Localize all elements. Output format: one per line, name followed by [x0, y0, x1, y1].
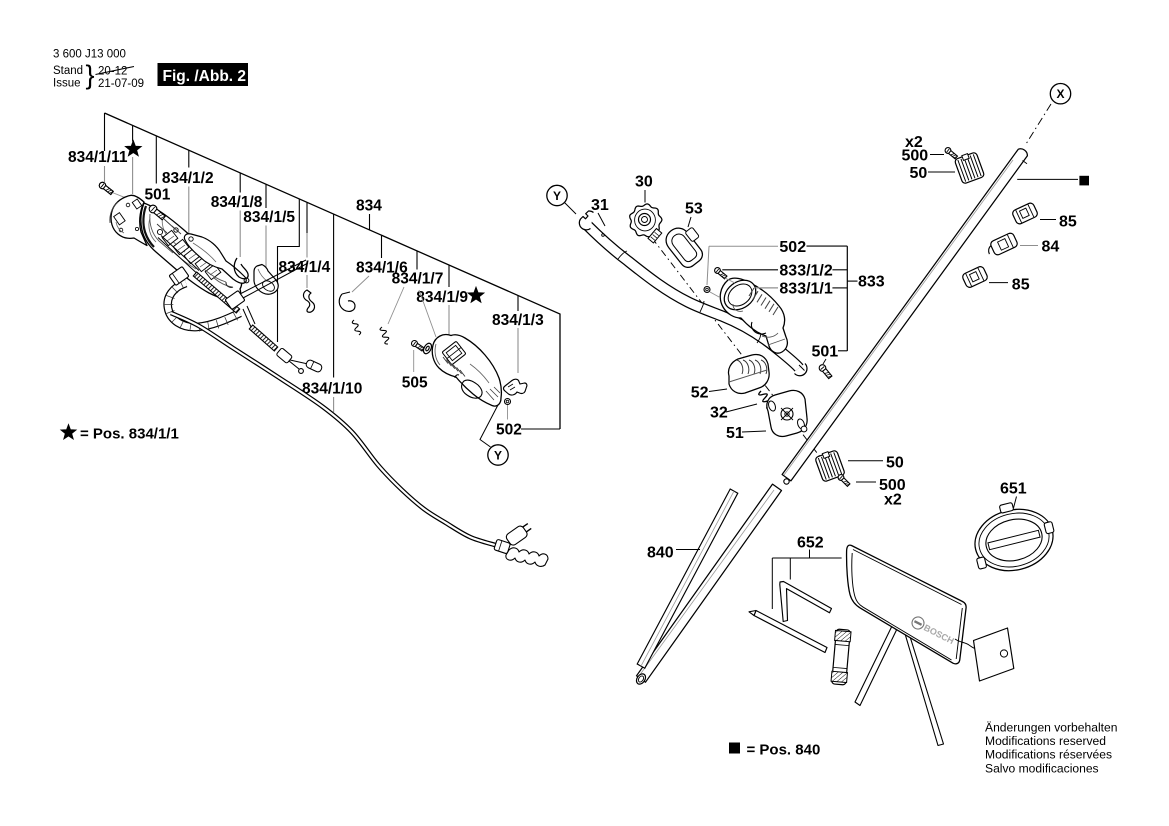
svg-text:X: X [1056, 87, 1064, 101]
svg-text:502: 502 [496, 422, 522, 439]
svg-text:85: 85 [1012, 277, 1030, 294]
svg-text:834/1/5: 834/1/5 [243, 209, 295, 226]
svg-text:834/1/4: 834/1/4 [279, 259, 331, 276]
svg-text:Stand: Stand [53, 65, 83, 77]
svg-text:Issue: Issue [53, 78, 81, 90]
svg-text:501: 501 [145, 187, 171, 204]
svg-text:Modifications reserved: Modifications reserved [985, 734, 1106, 748]
svg-text:Änderungen vorbehalten: Änderungen vorbehalten [985, 721, 1117, 735]
svg-text:x2: x2 [884, 492, 902, 509]
svg-text:84: 84 [1042, 239, 1060, 256]
svg-text:834/1/10: 834/1/10 [302, 381, 362, 398]
svg-text:51: 51 [726, 425, 744, 442]
svg-text:501: 501 [812, 344, 839, 361]
svg-text:3 600 J13 000: 3 600 J13 000 [53, 49, 126, 61]
svg-text:505: 505 [402, 375, 428, 392]
svg-text:840: 840 [647, 545, 674, 562]
svg-text:834/1/2: 834/1/2 [162, 170, 214, 187]
svg-text:53: 53 [685, 201, 703, 218]
svg-text:Modifications réservées: Modifications réservées [985, 748, 1112, 762]
svg-text:834/1/11: 834/1/11 [68, 149, 128, 166]
svg-text:502: 502 [779, 239, 806, 256]
svg-text:21-07-09: 21-07-09 [98, 78, 144, 90]
svg-text:652: 652 [797, 535, 824, 552]
svg-text:Y: Y [553, 189, 561, 203]
svg-text:= Pos. 840: = Pos. 840 [747, 742, 821, 759]
svg-text:Y: Y [494, 448, 502, 462]
svg-text:32: 32 [710, 405, 728, 422]
svg-text:30: 30 [635, 174, 653, 191]
svg-text:52: 52 [691, 385, 709, 402]
svg-text:}: } [86, 60, 95, 90]
svg-text:85: 85 [1059, 214, 1077, 231]
svg-text:Salvo modificaciones: Salvo modificaciones [985, 761, 1099, 775]
svg-text:834: 834 [356, 198, 382, 215]
svg-text:834/1/7: 834/1/7 [392, 271, 444, 288]
svg-text:833: 833 [858, 274, 885, 291]
svg-text:20-12: 20-12 [98, 66, 127, 78]
svg-text:50: 50 [910, 165, 928, 182]
svg-text:= Pos. 834/1/1: = Pos. 834/1/1 [80, 426, 179, 443]
svg-text:833/1/1: 833/1/1 [779, 281, 832, 298]
svg-text:31: 31 [591, 197, 609, 214]
svg-text:651: 651 [1000, 481, 1027, 498]
svg-text:500: 500 [902, 148, 929, 165]
svg-text:50: 50 [886, 455, 904, 472]
svg-text:Fig. /Abb. 2: Fig. /Abb. 2 [163, 68, 247, 85]
svg-text:833/1/2: 833/1/2 [779, 263, 832, 280]
svg-text:834/1/3: 834/1/3 [492, 312, 544, 329]
